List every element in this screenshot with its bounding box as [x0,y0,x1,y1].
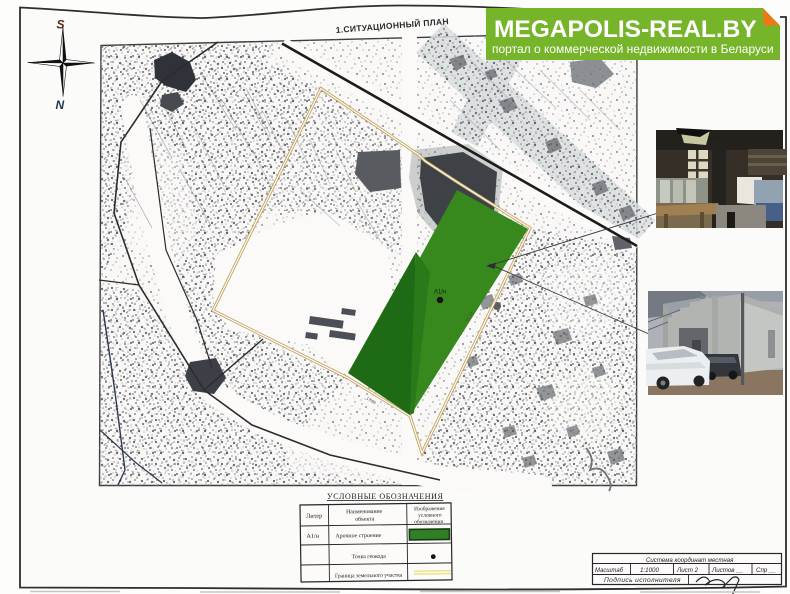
svg-text:1:1000: 1:1000 [640,567,659,574]
svg-text:Лист 2: Лист 2 [676,567,699,574]
svg-text:Спр __: Спр __ [756,567,776,574]
svg-text:А1/н: А1/н [306,533,319,540]
svg-text:Изображение: Изображение [414,505,445,512]
svg-text:Наименование: Наименование [346,509,383,516]
svg-text:Листов __: Листов __ [711,567,744,574]
svg-text:Граница земельного участка: Граница земельного участка [335,573,403,580]
svg-text:объекта: объекта [355,515,375,522]
svg-text:Литер: Литер [306,513,322,520]
svg-text:условного: условного [418,513,442,519]
svg-text:Точка геокода: Точка геокода [352,554,387,560]
svg-text:Система координат местная: Система координат местная [646,557,734,564]
svg-text:обозначения: обозначения [414,518,443,525]
svg-text:Масштаб: Масштаб [595,568,624,574]
svg-text:УСЛОВНЫЕ ОБОЗНАЧЕНИЯ: УСЛОВНЫЕ ОБОЗНАЧЕНИЯ [327,492,443,501]
svg-text:Арочное строение: Арочное строение [335,533,381,540]
svg-text:Подпись исполнителя: Подпись исполнителя [604,576,681,584]
